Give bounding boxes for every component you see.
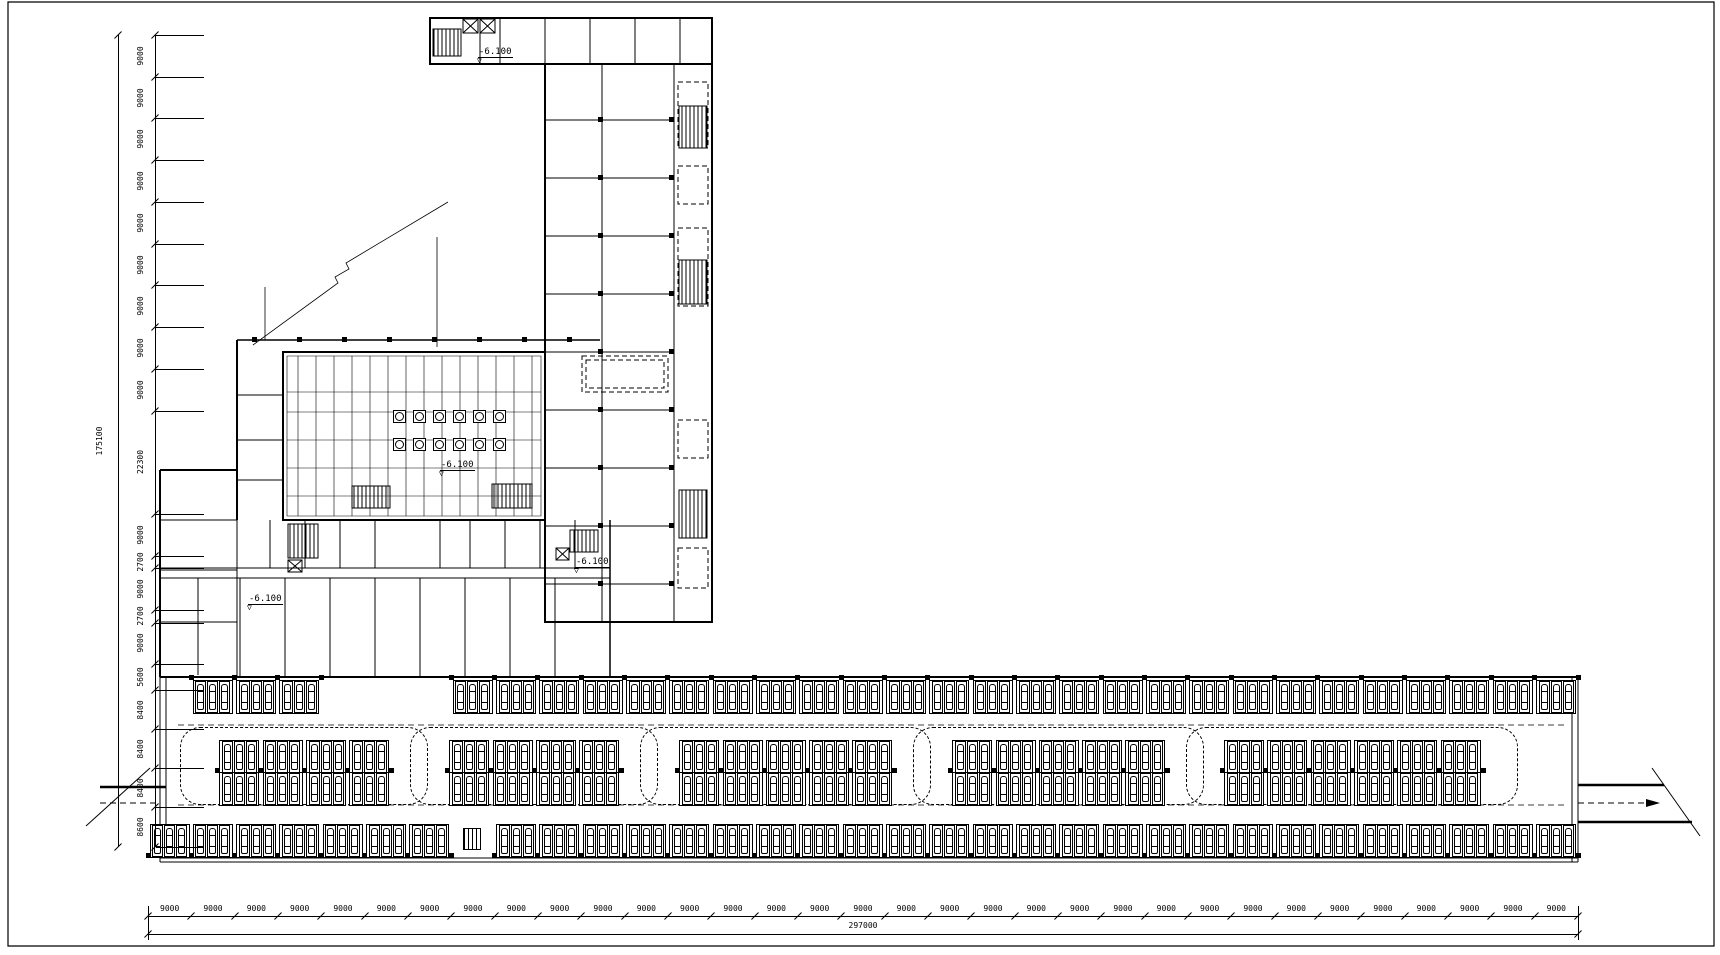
- column-icon: [669, 117, 674, 122]
- parking-stall: [1369, 741, 1380, 773]
- dim-line: [156, 411, 204, 412]
- car-icon: [717, 828, 724, 854]
- parking-stall: [1053, 773, 1064, 805]
- dimension-label: 5600: [137, 668, 145, 687]
- car-icon: [1402, 744, 1409, 770]
- parking-stall: [1334, 825, 1345, 857]
- parking-group: [1319, 680, 1359, 714]
- car-icon: [323, 744, 330, 770]
- car-icon: [770, 776, 777, 802]
- parking-stall: [263, 681, 274, 713]
- column-icon: [146, 853, 151, 858]
- parking-stall: [369, 825, 380, 857]
- car-icon: [1194, 684, 1201, 710]
- parking-stall: [1563, 825, 1574, 857]
- parking-stall: [1239, 741, 1250, 773]
- parking-stall: [207, 825, 218, 857]
- car-icon: [556, 828, 563, 854]
- parking-group: [952, 740, 992, 774]
- dim-line: [156, 35, 204, 36]
- stair-hatch: [288, 524, 318, 558]
- parking-stall: [1346, 825, 1357, 857]
- column-icon: [445, 768, 450, 773]
- dimension-label: 9000: [463, 905, 482, 913]
- parking-stall: [294, 681, 305, 713]
- car-icon: [466, 744, 473, 770]
- lower-block: [160, 520, 610, 677]
- parking-group: [1233, 680, 1273, 714]
- car-icon: [478, 744, 485, 770]
- car-icon: [1218, 828, 1225, 854]
- column-symbol: [493, 410, 506, 423]
- car-icon: [1359, 744, 1366, 770]
- car-icon: [857, 776, 864, 802]
- car-icon: [553, 744, 560, 770]
- parking-group: [626, 824, 666, 858]
- column-icon: [1142, 853, 1147, 858]
- column-icon: [992, 768, 997, 773]
- car-icon: [414, 828, 421, 854]
- parking-stall: [1507, 681, 1518, 713]
- parking-stall: [519, 741, 530, 773]
- parking-group: [669, 680, 709, 714]
- parking-stall: [1279, 825, 1290, 857]
- column-icon: [598, 523, 603, 528]
- parking-stall: [1539, 825, 1550, 857]
- car-icon: [513, 828, 520, 854]
- parking-group: [1493, 824, 1533, 858]
- parking-stall: [1421, 681, 1432, 713]
- dim-line: [156, 514, 204, 515]
- dimension-label: 9000: [1373, 905, 1392, 913]
- column-icon: [259, 768, 264, 773]
- stair-hatch: [679, 106, 707, 148]
- car-icon: [291, 744, 298, 770]
- car-icon: [568, 828, 575, 854]
- column-icon: [925, 675, 930, 680]
- parking-stall: [476, 773, 487, 805]
- parking-group: [453, 680, 493, 714]
- parking-stall: [1476, 825, 1487, 857]
- column-icon: [1099, 675, 1104, 680]
- parking-stall: [869, 825, 880, 857]
- car-icon: [631, 828, 638, 854]
- parking-group: [193, 824, 233, 858]
- parking-stall: [1282, 773, 1293, 805]
- parking-stall: [987, 825, 998, 857]
- parking-stall: [207, 681, 218, 713]
- car-icon: [859, 828, 866, 854]
- car-icon: [915, 828, 922, 854]
- parking-stall: [594, 741, 605, 773]
- parking-stall: [879, 741, 890, 773]
- parking-stall: [780, 741, 791, 773]
- dimension-label: 9000: [1287, 905, 1306, 913]
- dimension-label: 9000: [810, 905, 829, 913]
- car-icon: [751, 744, 758, 770]
- column-icon: [752, 853, 757, 858]
- car-icon: [782, 744, 789, 770]
- parking-stall: [1270, 741, 1281, 773]
- car-icon: [339, 828, 346, 854]
- column-symbol: [473, 410, 486, 423]
- parking-stall: [1369, 773, 1380, 805]
- car-icon: [674, 684, 681, 710]
- column-icon: [622, 675, 627, 680]
- parking-group: [1441, 740, 1481, 774]
- parking-stall: [1433, 825, 1444, 857]
- car-icon: [1043, 776, 1050, 802]
- parking-stall: [1424, 741, 1435, 773]
- parking-group: [536, 740, 576, 774]
- parking-group: [1082, 740, 1122, 774]
- parking-stall: [542, 825, 553, 857]
- parking-stall: [412, 825, 423, 857]
- parking-stall: [1303, 825, 1314, 857]
- parking-stall: [277, 741, 288, 773]
- car-icon: [553, 776, 560, 802]
- car-icon: [1371, 776, 1378, 802]
- parking-stall: [783, 825, 794, 857]
- car-icon: [248, 776, 255, 802]
- car-icon: [1315, 744, 1322, 770]
- column-icon: [1099, 853, 1104, 858]
- car-icon: [1383, 744, 1390, 770]
- car-icon: [1076, 828, 1083, 854]
- car-icon: [1261, 684, 1268, 710]
- parking-stall: [814, 681, 825, 713]
- car-icon: [1445, 744, 1452, 770]
- column-icon: [489, 768, 494, 773]
- parking-stall: [694, 741, 705, 773]
- car-icon: [828, 684, 835, 710]
- parking-group: [809, 772, 849, 806]
- parking-group: [1276, 680, 1316, 714]
- car-icon: [946, 828, 953, 854]
- column-icon: [1165, 768, 1170, 773]
- parking-stall: [1149, 681, 1160, 713]
- parking-group: [799, 824, 839, 858]
- column-icon: [669, 581, 674, 586]
- parking-stall: [282, 825, 293, 857]
- car-icon: [1033, 828, 1040, 854]
- parking-group: [1267, 740, 1307, 774]
- car-icon: [354, 776, 361, 802]
- car-icon: [1045, 684, 1052, 710]
- parking-stall: [979, 773, 990, 805]
- parking-stall: [1467, 741, 1478, 773]
- car-icon: [869, 744, 876, 770]
- parking-group: [1146, 824, 1186, 858]
- dimension-label: 9000: [290, 905, 309, 913]
- dimension-label: 9000: [160, 905, 179, 913]
- parking-group: [1363, 824, 1403, 858]
- car-icon: [1391, 828, 1398, 854]
- column-icon: [598, 117, 603, 122]
- parking-bottom-wall: [160, 858, 1578, 862]
- dim-line: [156, 327, 204, 328]
- car-icon: [804, 684, 811, 710]
- parking-stall: [768, 741, 779, 773]
- parking-stall: [1519, 825, 1530, 857]
- column-icon: [1445, 675, 1450, 680]
- level-value: -6.100: [478, 47, 513, 58]
- car-icon: [1024, 776, 1031, 802]
- parking-stall: [1053, 741, 1064, 773]
- car-icon: [608, 776, 615, 802]
- car-icon: [291, 776, 298, 802]
- column-icon: [709, 675, 714, 680]
- column-icon: [1576, 675, 1581, 680]
- parking-stall: [219, 681, 230, 713]
- car-icon: [1305, 684, 1312, 710]
- dim-line: [156, 285, 204, 286]
- parking-stall: [566, 681, 577, 713]
- parking-stall: [1282, 741, 1293, 773]
- parking-group: [579, 740, 619, 774]
- parking-stall: [499, 825, 510, 857]
- parking-group: [1016, 680, 1056, 714]
- car-icon: [1119, 828, 1126, 854]
- column-icon: [598, 175, 603, 180]
- floor-plan-linework: [0, 0, 1720, 955]
- car-icon: [541, 744, 548, 770]
- parking-stall: [867, 773, 878, 805]
- car-icon: [981, 776, 988, 802]
- car-icon: [521, 744, 528, 770]
- parking-stall: [629, 825, 640, 857]
- column-icon: [1229, 853, 1234, 858]
- parking-group: [1536, 824, 1576, 858]
- car-icon: [696, 776, 703, 802]
- parking-stall: [306, 825, 317, 857]
- parking-group: [1276, 824, 1316, 858]
- car-icon: [395, 828, 402, 854]
- parking-stall: [845, 825, 856, 857]
- parking-group: [679, 772, 719, 806]
- car-icon: [478, 776, 485, 802]
- level-marker: -6.100: [440, 461, 475, 470]
- parking-island-outline: [410, 727, 658, 805]
- car-icon: [1402, 776, 1409, 802]
- parking-stall: [1443, 741, 1454, 773]
- parking-stall: [1270, 773, 1281, 805]
- car-icon: [457, 684, 464, 710]
- dim-line: [156, 807, 204, 808]
- parking-stall: [1247, 825, 1258, 857]
- parking-stall: [759, 681, 770, 713]
- car-icon: [816, 684, 823, 710]
- car-icon: [265, 828, 272, 854]
- parking-stall: [551, 741, 562, 773]
- column-icon: [535, 853, 540, 858]
- parking-stall: [1365, 825, 1376, 857]
- break-line: [253, 202, 448, 347]
- column-icon: [319, 675, 324, 680]
- dim-line: [156, 118, 204, 119]
- car-icon: [957, 744, 964, 770]
- column-icon: [1489, 853, 1494, 858]
- parking-group: [583, 680, 623, 714]
- dimension-label: 9000: [137, 171, 145, 190]
- parking-stall: [476, 741, 487, 773]
- car-icon: [501, 828, 508, 854]
- parking-stall: [452, 741, 463, 773]
- parking-stall: [582, 773, 593, 805]
- parking-stall: [424, 825, 435, 857]
- column-icon: [669, 175, 674, 180]
- parking-stall: [597, 825, 608, 857]
- column-icon: [669, 233, 674, 238]
- car-icon: [1151, 684, 1158, 710]
- parking-group: [799, 680, 839, 714]
- car-icon: [891, 828, 898, 854]
- parking-stall: [672, 825, 683, 857]
- column-symbol: [453, 438, 466, 451]
- car-icon: [296, 684, 303, 710]
- parking-stall: [1409, 681, 1420, 713]
- dimension-label: 9000: [137, 213, 145, 232]
- parking-stall: [889, 681, 900, 713]
- parking-group: [852, 740, 892, 774]
- parking-stall: [1086, 681, 1097, 713]
- parking-stall: [1294, 741, 1305, 773]
- dim-line: [156, 160, 204, 161]
- column-icon: [948, 768, 953, 773]
- parking-stall: [987, 681, 998, 713]
- car-icon: [525, 828, 532, 854]
- parking-group: [1016, 824, 1056, 858]
- dimension-label: 9000: [333, 905, 352, 913]
- top-wing: [430, 18, 712, 64]
- column-icon: [575, 768, 580, 773]
- column-icon: [1012, 675, 1017, 680]
- parking-group: [1224, 772, 1264, 806]
- parking-stall: [164, 825, 175, 857]
- parking-stall: [1251, 741, 1262, 773]
- parking-group: [449, 772, 489, 806]
- column-icon: [297, 337, 302, 342]
- column-icon: [405, 853, 410, 858]
- parking-group: [973, 680, 1013, 714]
- parking-stall: [609, 825, 620, 857]
- parking-stall: [452, 773, 463, 805]
- car-icon: [958, 828, 965, 854]
- parking-stall: [364, 741, 375, 773]
- dim-line: [156, 369, 204, 370]
- dim-line: [156, 623, 204, 624]
- parking-stall: [975, 681, 986, 713]
- parking-stall: [715, 825, 726, 857]
- car-icon: [224, 776, 231, 802]
- car-icon: [761, 828, 768, 854]
- parking-group: [756, 680, 796, 714]
- dimension-label: 9000: [203, 905, 222, 913]
- column-icon: [1055, 675, 1060, 680]
- parking-stall: [1563, 681, 1574, 713]
- parking-stall: [1031, 825, 1042, 857]
- car-icon: [1509, 828, 1516, 854]
- parking-stall: [696, 825, 707, 857]
- column-icon: [598, 407, 603, 412]
- parking-stall: [1337, 773, 1348, 805]
- car-icon: [311, 744, 318, 770]
- column-icon: [215, 768, 220, 773]
- parking-stall: [1377, 681, 1388, 713]
- parking-stall: [706, 741, 717, 773]
- parking-stall: [246, 741, 257, 773]
- parking-group: [723, 772, 763, 806]
- car-icon: [1088, 684, 1095, 710]
- parking-stall: [1173, 681, 1184, 713]
- parking-stall: [1105, 825, 1116, 857]
- column-symbol: [473, 438, 486, 451]
- column-symbol: [393, 410, 406, 423]
- car-icon: [513, 684, 520, 710]
- car-icon: [1348, 828, 1355, 854]
- column-icon: [839, 675, 844, 680]
- column-icon: [1307, 768, 1312, 773]
- parking-group: [1319, 824, 1359, 858]
- parking-stall: [1117, 825, 1128, 857]
- parking-stall: [585, 825, 596, 857]
- car-icon: [1284, 776, 1291, 802]
- parking-stall: [1019, 681, 1030, 713]
- car-icon: [903, 684, 910, 710]
- level-value: -6.100: [575, 557, 610, 568]
- car-icon: [1454, 684, 1461, 710]
- car-icon: [782, 776, 789, 802]
- car-icon: [1478, 828, 1485, 854]
- parking-stall: [653, 825, 664, 857]
- car-icon: [608, 744, 615, 770]
- column-icon: [892, 768, 897, 773]
- car-icon: [1131, 828, 1138, 854]
- parking-stall: [306, 681, 317, 713]
- car-icon: [279, 776, 286, 802]
- parking-stall: [1204, 825, 1215, 857]
- car-icon: [267, 776, 274, 802]
- car-icon: [1099, 776, 1106, 802]
- parking-stall: [826, 681, 837, 713]
- car-icon: [556, 684, 563, 710]
- dim-line: [156, 568, 204, 569]
- parking-stall: [1152, 741, 1163, 773]
- parking-stall: [1161, 681, 1172, 713]
- stair-hatch: [492, 484, 532, 508]
- parking-group: [929, 824, 969, 858]
- parking-stall: [1204, 681, 1215, 713]
- level-marker: -6.100: [575, 558, 610, 567]
- parking-group: [1082, 772, 1122, 806]
- parking-stall: [814, 825, 825, 857]
- parking-stall: [309, 741, 320, 773]
- parking-group: [279, 824, 319, 858]
- parking-group: [1059, 680, 1099, 714]
- parking-stall: [955, 741, 966, 773]
- parking-stall: [1216, 681, 1227, 713]
- parking-stall: [768, 773, 779, 805]
- car-icon: [631, 684, 638, 710]
- column-symbol: [453, 410, 466, 423]
- car-icon: [698, 684, 705, 710]
- dim-line: [156, 729, 204, 730]
- parking-group: [579, 772, 619, 806]
- car-icon: [1414, 744, 1421, 770]
- parking-group: [852, 772, 892, 806]
- car-icon: [311, 776, 318, 802]
- parking-stall: [1128, 773, 1139, 805]
